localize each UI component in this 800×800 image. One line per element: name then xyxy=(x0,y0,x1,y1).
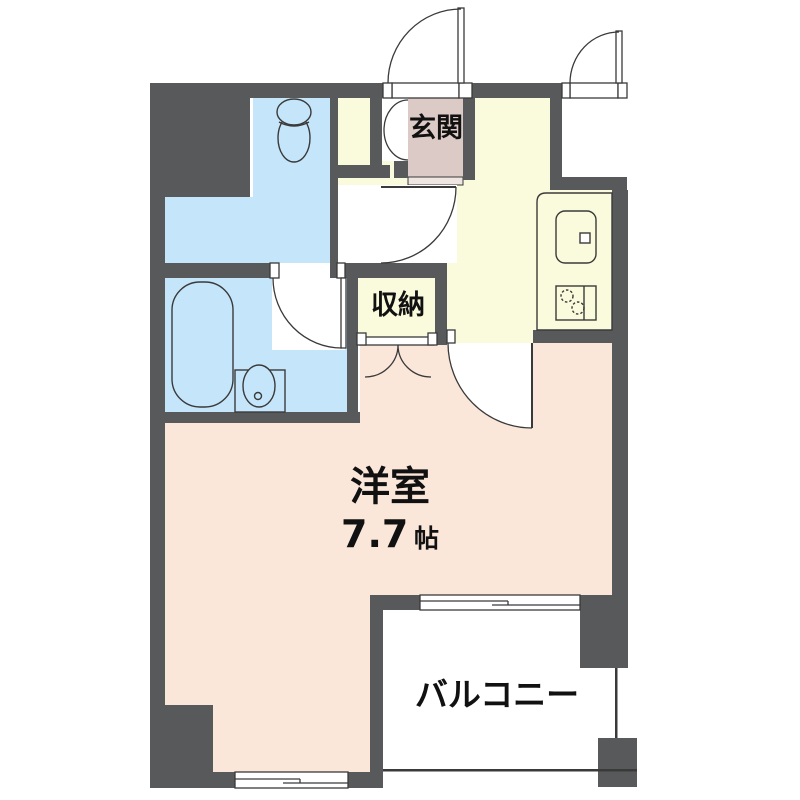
entrance-step xyxy=(408,177,463,185)
wall-entrance-left xyxy=(370,98,382,165)
alcove-door-swing xyxy=(570,32,619,83)
toilet-icon xyxy=(277,99,311,162)
wall-bifold-stub xyxy=(394,161,408,178)
wall-balcony-block-bottom xyxy=(598,738,637,787)
western-room-size-unit: 帖 xyxy=(414,524,439,553)
wall-bottom-a xyxy=(213,772,235,788)
jamb xyxy=(383,83,392,98)
front-door-opening xyxy=(392,83,459,98)
floor-plan-drawing: 玄関 収納 洋室 7.7 帖 バルコニー xyxy=(0,0,800,800)
balcony-sliding-window xyxy=(420,595,580,610)
jamb xyxy=(562,83,570,98)
front-door-leaf xyxy=(458,8,464,83)
wall-bathroom-bottom xyxy=(150,412,360,423)
wall-notch-bottom xyxy=(330,165,390,178)
wall-balcony-block-top xyxy=(580,595,628,668)
alcove-door-opening xyxy=(570,83,618,98)
wall-bottom-b xyxy=(348,772,383,788)
storage-label: 収納 xyxy=(371,289,425,321)
western-room-size-number: 7.7 xyxy=(341,512,408,556)
exterior-alcove xyxy=(562,98,627,190)
western-room-label: 洋室 xyxy=(350,464,430,510)
bathroom-door-leaf xyxy=(341,278,346,348)
jamb xyxy=(357,333,366,345)
wall-bottomleft-block xyxy=(150,705,213,788)
wall-window-stub xyxy=(383,595,420,610)
washroom-floor xyxy=(165,197,330,263)
wall-entrance-right xyxy=(463,98,475,180)
entrance-label: 玄関 xyxy=(409,112,463,144)
wall-washroom-right xyxy=(330,98,338,278)
bifold-door-zone xyxy=(382,98,408,161)
wall-bathroom-top-a xyxy=(150,263,272,278)
wall-left xyxy=(150,83,165,705)
stove-burners-icon xyxy=(556,286,596,320)
wall-balcony-left xyxy=(370,595,383,772)
wall-alcove-bottom xyxy=(550,177,627,190)
kitchen-sink-icon xyxy=(556,211,596,263)
jamb xyxy=(618,83,627,98)
jamb xyxy=(459,83,472,98)
wall-kitchen-room xyxy=(533,330,612,343)
washroom-door-zone xyxy=(338,185,457,263)
closet-door-track xyxy=(360,337,434,345)
jamb xyxy=(447,330,455,343)
balcony-bottom-line xyxy=(383,769,637,772)
jamb xyxy=(337,263,345,278)
jamb xyxy=(428,333,437,345)
jamb xyxy=(270,263,279,278)
wall-alcove-left xyxy=(550,97,562,190)
bottom-sliding-window xyxy=(235,772,348,788)
balcony-label: バルコニー xyxy=(415,675,579,714)
wall-top-left xyxy=(150,83,383,98)
alcove-door-leaf xyxy=(616,31,622,83)
floor-plan-canvas: 玄関 収納 洋室 7.7 帖 バルコニー xyxy=(0,0,800,800)
balcony-right-line xyxy=(615,668,618,738)
wall-top-mid xyxy=(472,83,562,98)
front-door-swing xyxy=(388,9,461,83)
wall-right xyxy=(612,190,628,595)
